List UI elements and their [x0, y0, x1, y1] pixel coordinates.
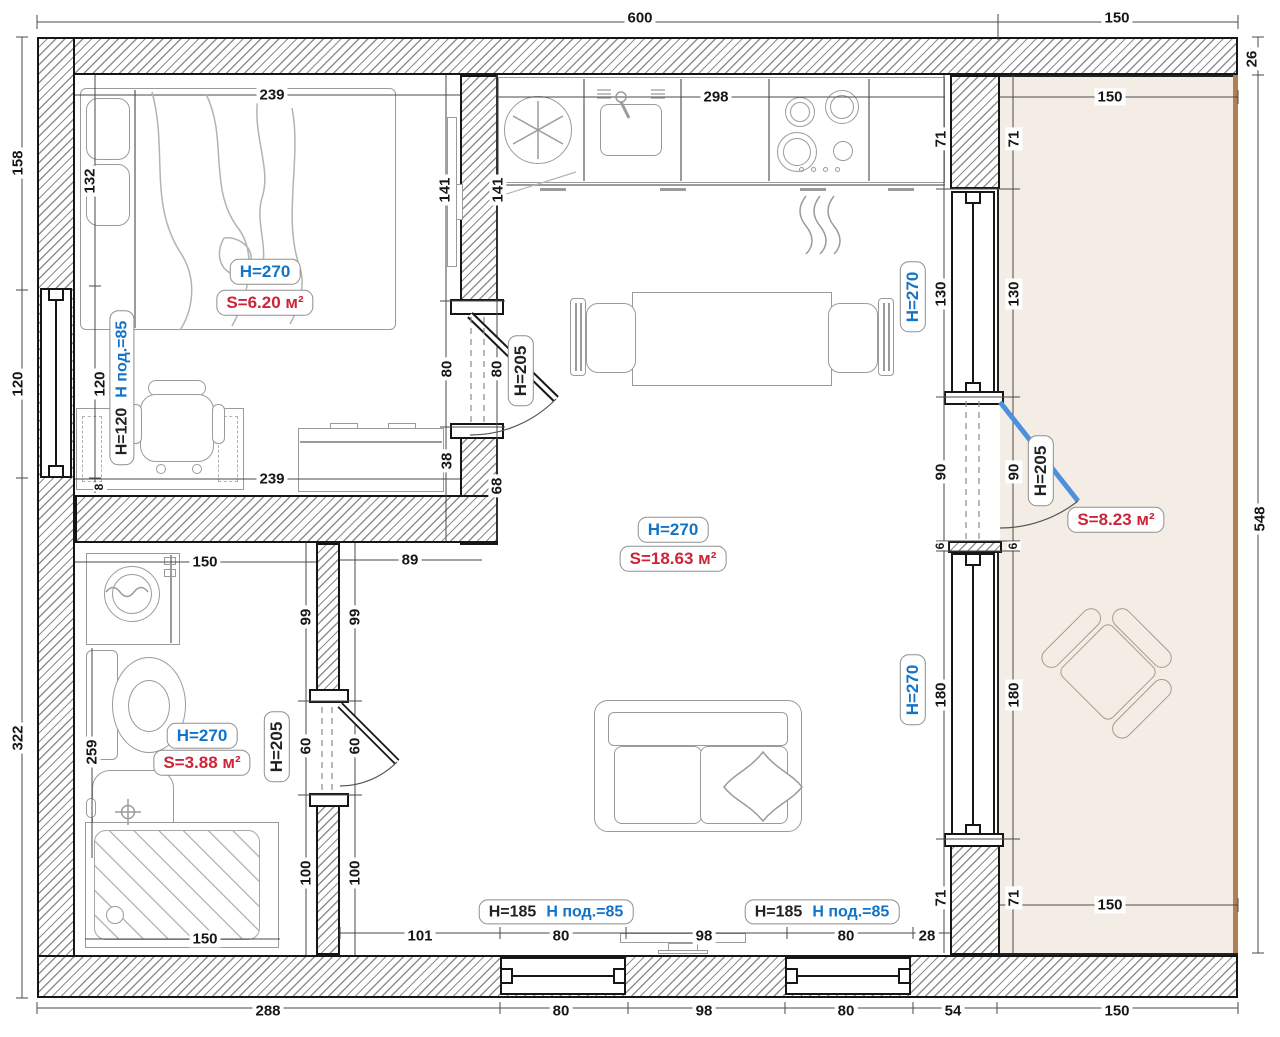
jamb-bathroom-door-top	[309, 689, 349, 703]
kitchen-foot-4	[888, 188, 914, 191]
kitchen-divider-2	[680, 79, 682, 181]
bedroom-window-sill: Н под.=85	[113, 321, 130, 398]
kitchen-foot-3	[800, 188, 826, 191]
bed-headboard-line	[134, 90, 136, 328]
kitchen-divider-1	[583, 79, 585, 181]
dim-60-48: 60	[297, 735, 314, 758]
balcony-area-tag: S=8.23 м²	[1067, 507, 1164, 533]
bathroom-door-opening	[318, 701, 338, 795]
dim-98-9: 98	[693, 1002, 716, 1019]
dining-chair-left-slat1	[575, 303, 577, 371]
jamb-balcony-door-top	[944, 391, 1004, 405]
office-chair-arm-right	[212, 404, 225, 444]
dim-38-27: 38	[438, 450, 455, 473]
dim-90-34: 90	[932, 461, 949, 484]
bedroom-window	[40, 288, 72, 478]
dim-71-31: 71	[1005, 128, 1022, 151]
dim-6-37: 6	[1007, 542, 1021, 551]
dim-180-38: 180	[932, 679, 949, 710]
toilet-bowl-inner	[128, 680, 170, 732]
sofa-seat-left	[614, 746, 702, 824]
dim-80-25: 80	[438, 358, 455, 381]
balcony-edge-line	[1233, 75, 1238, 953]
jamb-bedroom-door-top	[450, 299, 504, 315]
dim-80-10: 80	[835, 1002, 858, 1019]
sofa-back-cushion	[608, 712, 788, 746]
dim-8-21: 8	[93, 483, 107, 492]
kitchen-foot-2	[660, 188, 686, 191]
washer-door-line	[170, 555, 172, 643]
wall-lower-height-tag: Н=270	[900, 655, 926, 726]
bathroom-height-tag: H=270	[167, 723, 238, 749]
stove-burner-1b	[790, 102, 810, 122]
dim-600-0: 600	[624, 9, 655, 26]
dim-80-26: 80	[488, 358, 505, 381]
kitchen-sink-basin	[600, 104, 662, 156]
dim-150-43: 150	[1094, 896, 1125, 913]
stove-steam	[800, 196, 840, 254]
floor-plan: 6001502654815812032228880988054150101809…	[0, 0, 1280, 1037]
dim-150-44: 150	[189, 553, 220, 570]
wall-balcony-block-6	[948, 541, 1002, 553]
jamb-bedroom-door-bottom	[450, 423, 504, 439]
dim-132-19: 132	[81, 165, 98, 196]
wall-bottom	[37, 955, 1238, 998]
living-tv-base	[658, 950, 708, 954]
wall-top	[37, 37, 1238, 75]
dresser	[298, 428, 444, 492]
dim-288-7: 288	[252, 1002, 283, 1019]
kitchen-divider-3	[768, 79, 770, 181]
dim-141-24: 141	[489, 174, 506, 205]
living-window-left	[500, 957, 626, 995]
dim-100-50: 100	[297, 857, 314, 888]
living-window-right-height: H=185	[755, 903, 803, 920]
bedroom-area-tag: S=6.20 м²	[216, 290, 313, 316]
dim-120-20: 120	[91, 368, 108, 399]
dim-239-22: 239	[256, 470, 287, 487]
dim-100-51: 100	[346, 857, 363, 888]
dim-130-32: 130	[932, 278, 949, 309]
stove-knob-4	[835, 167, 840, 172]
kitchen-divider-4	[868, 79, 870, 181]
dim-80-14: 80	[550, 927, 573, 944]
stove-knob-3	[823, 167, 828, 172]
wall-bedroom-bottom	[75, 495, 498, 543]
balcony-door-height-tag: H=205	[1028, 436, 1054, 507]
dim-80-8: 80	[550, 1002, 573, 1019]
dim-259-52: 259	[83, 736, 100, 767]
dining-chair-left-seat	[586, 303, 636, 373]
dim-158-4: 158	[9, 147, 26, 178]
dining-chair-right-seat	[828, 303, 878, 373]
fridge-circle	[504, 96, 572, 164]
dim-89-45: 89	[399, 551, 422, 568]
dim-322-6: 322	[9, 722, 26, 753]
dim-99-46: 99	[297, 606, 314, 629]
bedroom-window-height: H=120	[113, 408, 130, 456]
jamb-window-lower-bottom	[944, 833, 1004, 847]
sofa-seat-right	[700, 746, 788, 824]
washer-drum-inner	[112, 574, 152, 614]
dim-150-1: 150	[1101, 9, 1132, 26]
dim-26-2: 26	[1243, 48, 1260, 71]
jamb-bathroom-door-bottom	[309, 793, 349, 807]
bathroom-soap-dish	[86, 798, 96, 818]
dim-71-41: 71	[1005, 887, 1022, 910]
dresser-top-line	[300, 441, 442, 443]
dining-chair-right-slat1	[883, 303, 885, 371]
living-window-left-tag: H=185Н под.=85	[479, 899, 634, 924]
dining-chair-right-back	[878, 298, 894, 376]
stove-burner-2b	[830, 95, 854, 119]
dresser-handle-1	[330, 423, 358, 429]
balcony-wall-window-upper	[951, 191, 995, 395]
dim-98-15: 98	[693, 927, 716, 944]
dining-chair-right-slat2	[888, 303, 890, 371]
office-chair-wheel-2	[192, 464, 202, 474]
dim-130-33: 130	[1005, 278, 1022, 309]
office-chair-wheel-1	[156, 464, 166, 474]
stove-knob-1	[799, 167, 804, 172]
wall-balcony-pier-bottom	[950, 839, 1000, 955]
dim-298-29: 298	[700, 88, 731, 105]
dim-6-36: 6	[934, 542, 948, 551]
living-window-right-sill: Н под.=85	[812, 903, 889, 920]
dim-239-18: 239	[256, 86, 287, 103]
dim-90-35: 90	[1005, 461, 1022, 484]
kitchen-foot-1	[540, 188, 566, 191]
dim-180-39: 180	[1005, 679, 1022, 710]
dim-548-3: 548	[1251, 503, 1268, 534]
bedroom-tv-mount	[456, 184, 463, 220]
balcony-door-opening	[950, 397, 1000, 541]
wall-upper-height-tag: Н=270	[900, 262, 926, 333]
dim-71-40: 71	[932, 887, 949, 910]
dim-28-17: 28	[916, 927, 939, 944]
bed-pillow-1	[86, 98, 130, 160]
stove-burner-3b	[783, 138, 811, 166]
dim-141-23: 141	[436, 174, 453, 205]
bathroom-area-tag: S=3.88 м²	[153, 750, 250, 776]
dim-101-13: 101	[404, 927, 435, 944]
bathroom-door-height-tag: H=205	[264, 712, 290, 783]
dim-68-28: 68	[488, 475, 505, 498]
stove-knob-2	[811, 167, 816, 172]
stove-burner-4	[833, 141, 853, 161]
living-window-right	[785, 957, 911, 995]
living-window-left-sill: Н под.=85	[546, 903, 623, 920]
dresser-handle-2	[388, 423, 416, 429]
balcony-wall-window-lower	[951, 553, 995, 837]
bedroom-height-tag: H=270	[230, 259, 301, 285]
shower-tray-inner	[94, 830, 260, 940]
dining-chair-left-back	[570, 298, 586, 376]
dim-71-30: 71	[932, 128, 949, 151]
dining-table	[632, 292, 832, 386]
desk-drawer-left	[82, 416, 102, 482]
wall-bathroom-right-upper	[316, 543, 340, 701]
dim-150-42: 150	[1094, 88, 1125, 105]
shower-drain	[106, 906, 124, 924]
living-tv-screen	[620, 933, 746, 943]
dim-99-47: 99	[346, 606, 363, 629]
living-window-right-tag: H=185Н под.=85	[745, 899, 900, 924]
living-window-left-height: H=185	[489, 903, 537, 920]
bedroom-window-tag: H=120Н под.=85	[109, 311, 134, 466]
office-chair-seat	[140, 394, 214, 462]
dim-54-11: 54	[942, 1002, 965, 1019]
dim-120-5: 120	[9, 368, 26, 399]
kitchen-base-line	[498, 184, 945, 186]
wall-balcony-pier-top	[950, 75, 1000, 189]
wall-left	[37, 37, 75, 998]
wall-bathroom-right-lower	[316, 795, 340, 955]
living-area-tag: S=18.63 м²	[620, 546, 727, 572]
bedroom-door-height-tag: H=205	[508, 336, 534, 407]
dim-80-16: 80	[835, 927, 858, 944]
dining-chair-left-slat2	[580, 303, 582, 371]
dim-150-53: 150	[189, 930, 220, 947]
dim-60-49: 60	[346, 735, 363, 758]
living-height-tag: H=270	[638, 517, 709, 543]
dim-150-12: 150	[1101, 1002, 1132, 1019]
